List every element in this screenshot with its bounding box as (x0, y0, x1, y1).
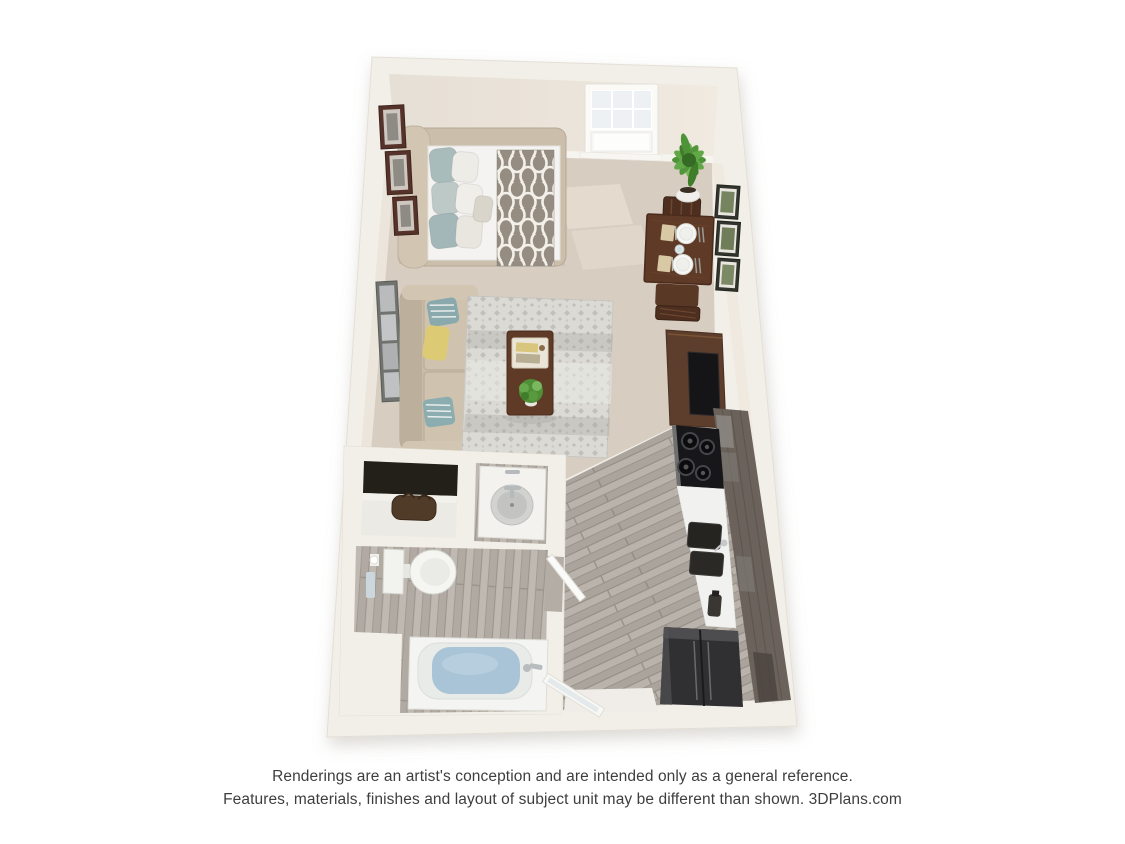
floorplan-page: Renderings are an artist's conception an… (0, 0, 1125, 844)
hand-towel (366, 572, 375, 598)
dining-chair-bottom (654, 283, 701, 321)
tv (688, 352, 720, 416)
coffee-table (505, 331, 557, 424)
window (580, 84, 662, 161)
kitchen-range (672, 425, 724, 489)
floorplan-rendering (0, 0, 1125, 844)
disclaimer-line1: Renderings are an artist's conception an… (0, 766, 1125, 789)
closet (361, 461, 458, 538)
duffel-bag (392, 493, 437, 521)
toilet (383, 549, 456, 594)
disclaimer: Renderings are an artist's conception an… (0, 766, 1125, 811)
bed-blanket (497, 150, 554, 266)
bathtub (408, 637, 548, 711)
closet-shelf (363, 461, 458, 496)
bed (398, 126, 566, 268)
disclaimer-line2: Features, materials, finishes and layout… (0, 789, 1125, 812)
refrigerator (660, 627, 743, 707)
bathroom-vanity (474, 463, 548, 544)
